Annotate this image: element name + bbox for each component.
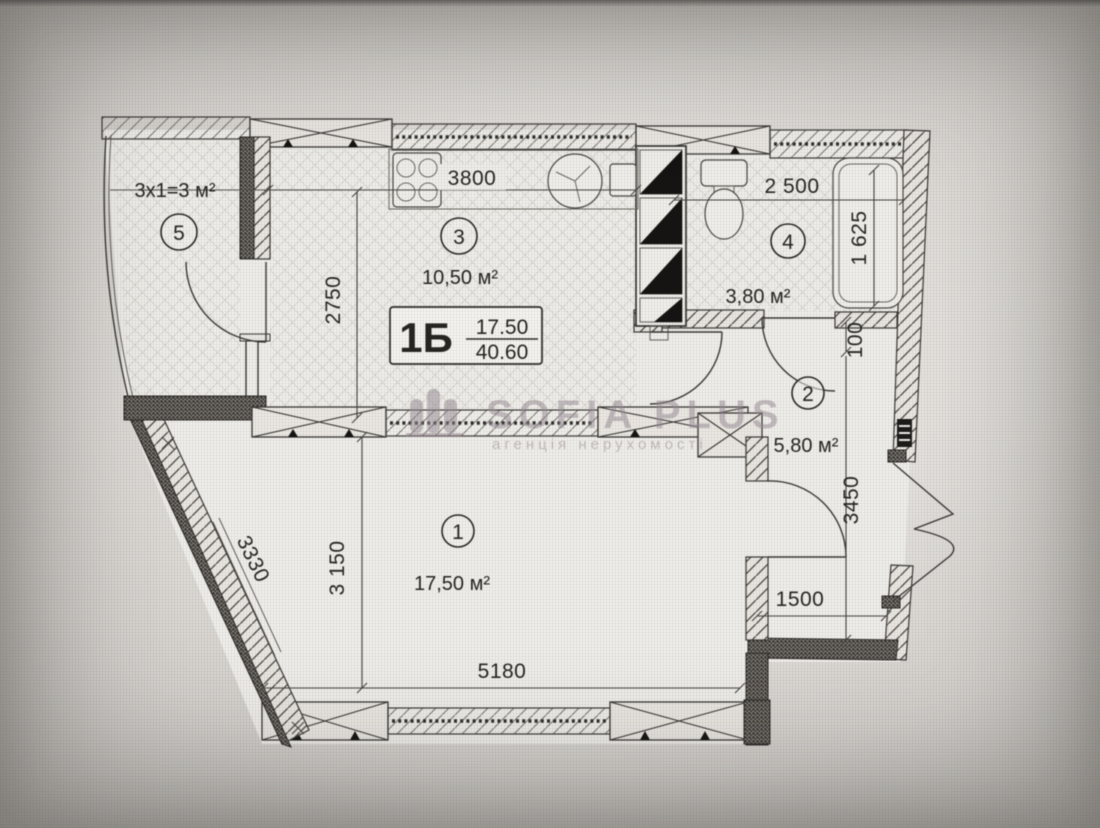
lintel-box-a	[250, 119, 392, 147]
stove-icon	[393, 153, 441, 207]
electrical-panel-icon	[897, 419, 912, 447]
living-window	[388, 708, 610, 734]
dim-label-3800: 3800	[448, 167, 497, 190]
unit-type-box: 1Б 17.50 40.60	[390, 307, 542, 364]
unit-area-bottom: 40.60	[476, 341, 529, 364]
kitchen-area-label: 10,50 м²	[422, 267, 498, 289]
entrance-jamb-top	[888, 450, 906, 462]
living-area-label: 17,50 м²	[414, 573, 490, 595]
living-number: 1	[452, 521, 464, 544]
hallway-number: 2	[802, 383, 814, 406]
step-wall-horizontal	[748, 638, 898, 660]
watermark-tagline: агенція нерухомості	[492, 436, 707, 453]
dim-label-2500: 2 500	[764, 175, 819, 198]
dim-label-2750: 2750	[322, 276, 345, 325]
bathroom-window	[770, 130, 908, 158]
dim-label-1500: 1500	[776, 588, 825, 611]
balcony-area-label: 3x1=3 м²	[134, 180, 215, 202]
unit-area-top: 17.50	[476, 316, 529, 339]
living-hall-wall-top	[746, 437, 768, 481]
dim-label-5180: 5180	[478, 660, 527, 683]
kitchen-window	[392, 124, 636, 150]
dim-label-3150: 3 150	[326, 540, 349, 595]
bathroom-number: 4	[782, 231, 794, 254]
hallway-area-label: 5,80 м²	[774, 435, 839, 457]
floor-plan-drawing: 3800 2 500 1 625 2750	[0, 0, 1100, 828]
living-hall-wall-bottom	[746, 557, 768, 640]
photographed-screen: 3800 2 500 1 625 2750	[0, 0, 1100, 828]
watermark-brand: SOFIA PLUS	[486, 393, 785, 437]
balcony-parapet-wall	[102, 117, 250, 139]
lintel-box-d	[610, 702, 748, 740]
unit-type-label: 1Б	[399, 314, 453, 361]
south-wall-end	[744, 700, 770, 744]
dim-niche: 100	[841, 317, 867, 358]
dim-label-3450: 3450	[840, 476, 863, 525]
dim-label-1625: 1 625	[848, 210, 871, 265]
balcony-number: 5	[173, 222, 185, 245]
dim-label-100: 100	[844, 322, 867, 359]
bathroom-area-label: 3,80 м²	[726, 286, 791, 308]
kitchen-number: 3	[453, 226, 465, 249]
balcony-bottom-wall	[124, 396, 266, 420]
vent-shaft	[636, 146, 686, 340]
